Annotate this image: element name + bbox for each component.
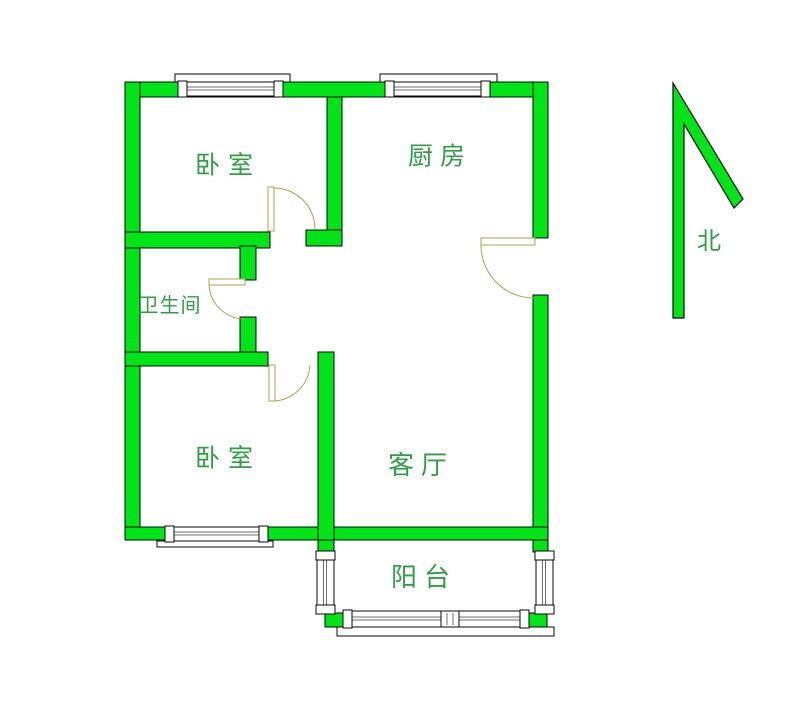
wall-balcony-corner-l — [325, 613, 343, 627]
window-kitchen-top-frame — [385, 82, 490, 96]
window-balcony-right — [535, 551, 554, 614]
window-balcony-left — [316, 551, 335, 614]
window-balcony-left-post — [316, 605, 335, 614]
door-bathroom — [209, 279, 245, 319]
wall-bath-right-low — [240, 317, 256, 354]
wall-balcony-corner-r — [529, 613, 547, 627]
door-entry-kitchen — [481, 238, 535, 298]
door-bathroom-leaf — [209, 279, 245, 285]
wall-balcony-stub-l — [318, 540, 334, 552]
window-balcony-bottom — [343, 610, 529, 628]
window-balcony-right-post — [535, 551, 554, 560]
window-kitchen-top — [385, 81, 490, 97]
sill-bedroom1-window — [175, 74, 290, 82]
window-bedroom2-bottom — [165, 526, 268, 542]
north-label: 北 — [697, 227, 721, 255]
door-bedroom-2-swing-arc — [272, 365, 310, 401]
window-balcony-left-post — [316, 551, 335, 560]
door-bedroom-2-leaf — [269, 365, 275, 401]
window-balcony-bottom-post — [343, 610, 352, 628]
door-bedroom-1-swing-arc — [274, 188, 315, 229]
window-balcony-right-post — [535, 605, 554, 614]
room-label-bathroom: 卫生间 — [139, 293, 202, 317]
room-label-bedroom-2: 卧室 — [195, 444, 261, 473]
door-bathroom-swing-arc — [209, 284, 245, 319]
wall-kitchen-left — [327, 97, 342, 232]
window-bedroom2-bottom-frame — [165, 527, 268, 541]
window-bedroom2-bottom-post — [165, 526, 174, 542]
wall-right-lower — [533, 295, 548, 540]
window-bedroom1-top-post — [178, 81, 187, 97]
window-balcony-bottom-frame — [343, 611, 529, 627]
room-label-living-room: 客厅 — [388, 451, 454, 481]
sill-kitchen-window — [380, 74, 497, 82]
wall-entry-corner — [306, 230, 342, 246]
room-label-bedroom-1: 卧室 — [195, 151, 261, 180]
window-bedroom1-top-frame — [178, 82, 283, 96]
door-bedroom-1-leaf — [268, 187, 274, 231]
door-entry-kitchen-swing-arc — [481, 245, 534, 298]
wall-balcony-stub-r — [533, 540, 548, 552]
room-label-balcony: 阳台 — [391, 563, 457, 593]
wall-bath-bottom — [125, 352, 268, 366]
room-label-kitchen: 厨房 — [408, 142, 472, 171]
floor-plan-canvas: 北卧室厨房卫生间卧室客厅阳台 — [0, 0, 800, 704]
window-bedroom1-top-post — [274, 81, 283, 97]
door-bedroom-1 — [268, 187, 315, 231]
window-bedroom1-top — [178, 81, 283, 97]
door-entry-kitchen-leaf — [481, 238, 535, 245]
window-balcony-bottom-mullion — [441, 611, 459, 627]
floor-plan: 北卧室厨房卫生间卧室客厅阳台 — [0, 0, 800, 704]
wall-bedroom2-right — [318, 352, 334, 540]
window-balcony-bottom-post — [520, 610, 529, 628]
door-bedroom-2 — [269, 365, 310, 401]
window-kitchen-top-post — [481, 81, 490, 97]
window-kitchen-top-post — [385, 81, 394, 97]
wall-right-upper — [533, 82, 548, 238]
wall-bath-right-up — [240, 246, 256, 280]
north-arrow-icon — [673, 83, 743, 318]
window-bedroom2-bottom-post — [259, 526, 268, 542]
